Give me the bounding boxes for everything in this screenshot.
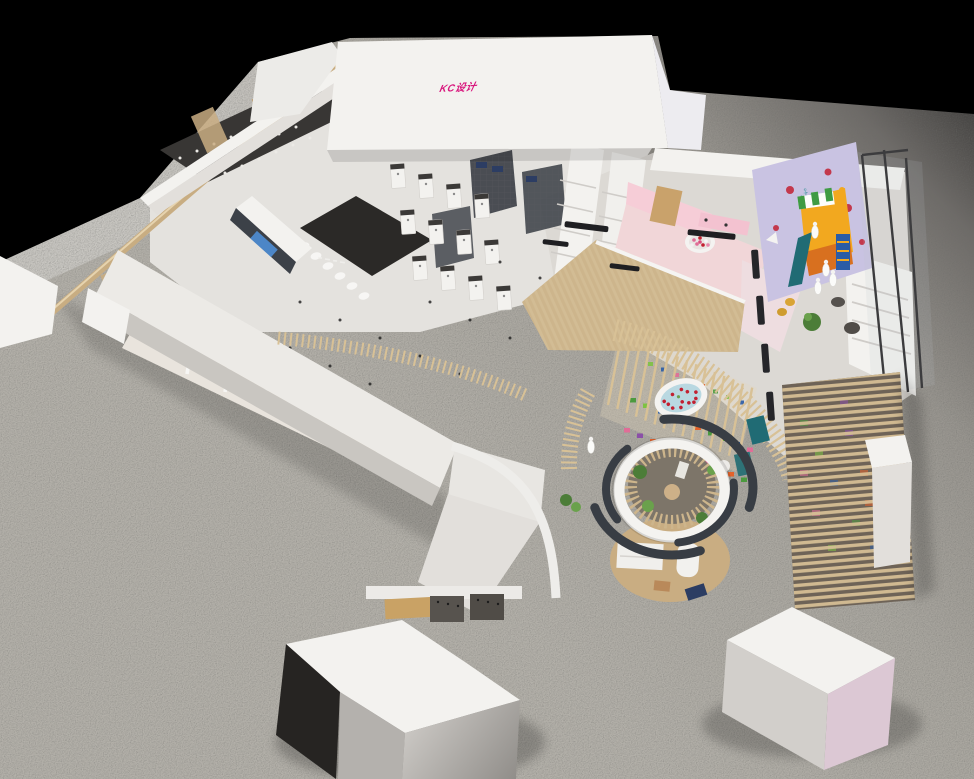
stool: [844, 322, 860, 334]
navy-basin: [476, 162, 487, 168]
planter: [560, 494, 572, 506]
ball: [690, 243, 694, 247]
rattan-chair: [664, 484, 680, 500]
faucet: [503, 295, 505, 297]
spotlight: [539, 277, 542, 280]
pegboard-cabinet: [470, 594, 504, 620]
kiosk-top: [418, 174, 432, 180]
render-stage: ⚓: [0, 0, 974, 779]
kiosk-top: [468, 276, 482, 282]
faucet: [397, 173, 399, 175]
spotlight: [329, 365, 332, 368]
dot: [309, 137, 312, 140]
mural-dot: [825, 169, 832, 176]
product: [630, 398, 636, 403]
planter: [571, 502, 581, 512]
person-head: [589, 437, 593, 441]
scene-canvas: ⚓: [0, 0, 974, 779]
person-body: [812, 226, 819, 239]
pouf: [785, 298, 795, 306]
spotlight: [299, 301, 302, 304]
product: [747, 448, 753, 453]
person-head: [816, 278, 820, 282]
ball: [704, 239, 708, 243]
faucet: [491, 249, 493, 251]
person-body: [588, 441, 595, 454]
spotlight: [509, 337, 512, 340]
back-room: [366, 586, 522, 622]
faucet: [419, 265, 421, 267]
person-body: [815, 282, 822, 295]
person-head: [813, 222, 817, 226]
product: [741, 478, 747, 483]
kiosk-top: [390, 164, 404, 170]
dot: [224, 172, 227, 175]
mural-dot: [773, 225, 779, 231]
ball: [698, 236, 702, 240]
faucet: [463, 239, 465, 241]
dot: [275, 151, 278, 154]
spotlight: [499, 261, 502, 264]
ball: [695, 242, 699, 246]
navy-basin: [526, 176, 537, 182]
faucet: [425, 183, 427, 185]
person-head: [831, 270, 835, 274]
spotlight: [339, 319, 342, 322]
kiosk-top: [428, 220, 442, 226]
pegboard-cabinet: [430, 596, 464, 622]
brand-logo: KC设计: [438, 78, 478, 95]
kiosk-top: [440, 266, 454, 272]
kiosk-top: [446, 184, 460, 190]
product: [648, 362, 653, 366]
product: [624, 428, 630, 433]
ball: [698, 240, 702, 244]
faucet: [435, 229, 437, 231]
mesh-partition-grid: [522, 164, 566, 234]
faucet: [481, 203, 483, 205]
mural-dot: [786, 186, 794, 194]
kiosk-top: [412, 256, 426, 262]
tap: [704, 218, 707, 221]
person-head: [824, 260, 828, 264]
wood-stool: [654, 580, 671, 592]
court-plant: [633, 465, 647, 479]
spotlight: [369, 383, 372, 386]
spotlight: [379, 337, 382, 340]
pergola: [782, 372, 935, 610]
person-body: [830, 274, 837, 287]
court-plant: [642, 500, 654, 512]
ball: [692, 238, 696, 242]
dot: [258, 158, 261, 161]
kiosk-top: [456, 230, 470, 236]
dot: [292, 144, 295, 147]
kiosk-top: [496, 286, 510, 292]
kiosk-top: [474, 194, 488, 200]
spotlight: [429, 301, 432, 304]
potted-plant-leaf: [804, 313, 812, 321]
kiosk-top: [484, 240, 498, 246]
dot: [295, 126, 298, 129]
wood-floor-strip: [385, 597, 436, 620]
main-roof-slab: [327, 35, 668, 150]
dot: [241, 165, 244, 168]
pouf: [777, 308, 787, 316]
product: [637, 434, 643, 439]
ball: [706, 243, 710, 247]
person-body: [823, 264, 830, 277]
stool: [831, 297, 845, 307]
kiosk-top: [400, 210, 414, 216]
pergola-column-face: [872, 462, 912, 568]
faucet: [447, 275, 449, 277]
roof-edge-shadow: [327, 148, 668, 162]
faucet: [475, 285, 477, 287]
pergola-column-top: [865, 435, 912, 468]
spotlight: [469, 319, 472, 322]
faucet: [407, 219, 409, 221]
faucet: [453, 193, 455, 195]
tap: [724, 223, 727, 226]
dot: [196, 150, 199, 153]
ball: [701, 243, 705, 247]
navy-basin: [492, 166, 503, 172]
dot: [179, 157, 182, 160]
